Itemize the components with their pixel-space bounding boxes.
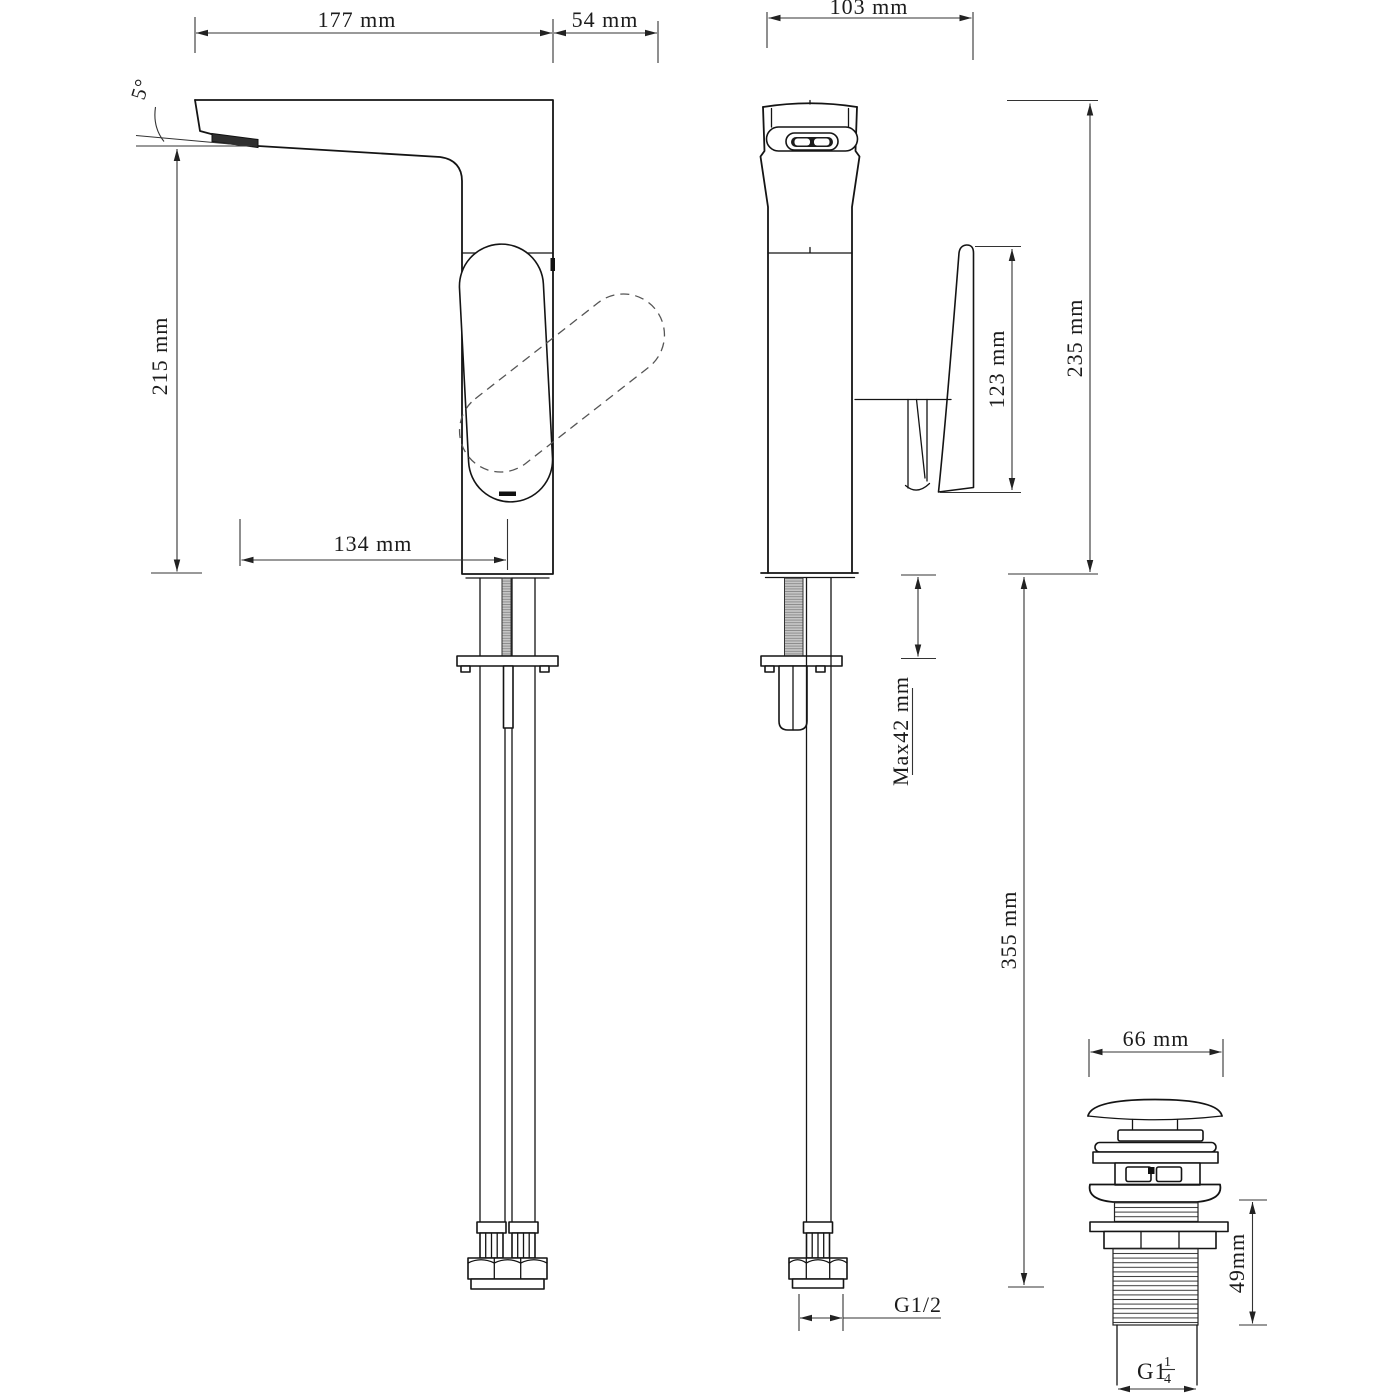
waste-dome-flange <box>1090 1185 1221 1203</box>
front-hose-connector <box>804 1222 833 1258</box>
dim-handle-clearance: 54 mm <box>554 7 658 63</box>
dim-waste-thread-size-denominator: 4 <box>1164 1372 1171 1387</box>
side-hose-connectors <box>477 1222 538 1258</box>
side-threaded-stud <box>502 578 511 659</box>
waste-view: 66 mm 49mm G1 1 4 <box>1088 1026 1267 1389</box>
waste-washer <box>1090 1222 1228 1232</box>
technical-drawing-sheet: 177 mm 54 mm 5° 215 mm 134 mm <box>0 0 1400 1400</box>
dim-cap-diameter-label: 66 mm <box>1123 1026 1190 1051</box>
dim-spout-angle: 5° <box>126 75 252 146</box>
front-head-left-edge <box>761 107 769 573</box>
dim-hose-length: 355 mm <box>996 577 1044 1287</box>
side-washer-foot-right <box>540 666 549 672</box>
dim-spout-height-label: 215 mm <box>147 317 172 396</box>
front-aerator-slot-left <box>795 139 811 146</box>
dim-spout-reach-label: 177 mm <box>318 7 397 32</box>
dim-hose-length-label: 355 mm <box>996 891 1021 970</box>
waste-clip-latch <box>1148 1167 1155 1174</box>
dim-total-height-label: 235 mm <box>1062 299 1087 378</box>
side-hex-nut <box>468 1258 547 1289</box>
dim-waste-thread-size-main: G1 <box>1137 1359 1167 1384</box>
waste-seal-ring <box>1095 1143 1216 1153</box>
dim-total-height: 235 mm <box>1007 101 1098 575</box>
waste-cap-bottom <box>1088 1116 1222 1120</box>
dim-handle-height-label: 123 mm <box>984 330 1009 409</box>
dim-spout-angle-label: 5° <box>126 75 155 102</box>
front-view: 103 mm 235 mm 123 mm Max42 mm 35 <box>761 0 1099 1331</box>
dim-spout-reach: 177 mm <box>195 7 553 63</box>
faucet-dimension-drawing: 177 mm 54 mm 5° 215 mm 134 mm <box>0 0 1400 1400</box>
waste-stem-plate <box>1118 1130 1203 1141</box>
front-body-midline <box>768 248 852 254</box>
dim-hose-thread: G1/2 <box>799 1292 942 1331</box>
side-mounting-washer <box>457 656 558 666</box>
dim-max-deck-thickness: Max42 mm <box>888 575 936 786</box>
dim-waste-thread-size-numerator: 1 <box>1164 1355 1171 1370</box>
front-mounting-washer <box>761 656 842 666</box>
waste-clip-right <box>1157 1167 1182 1182</box>
dim-waste-thread-size: G1 1 4 <box>1118 1355 1196 1389</box>
front-aerator-slot-right <box>814 139 830 146</box>
waste-cap-top <box>1088 1100 1222 1117</box>
dim-spout-projection: 134 mm <box>240 519 508 570</box>
side-body-button-detail <box>551 258 556 271</box>
side-mounting-nut-edge <box>504 666 514 728</box>
front-head-right-edge <box>852 107 860 573</box>
waste-cap-stem <box>1133 1120 1178 1131</box>
dim-body-depth-label: 103 mm <box>830 0 909 19</box>
dim-hose-thread-label: G1/2 <box>894 1292 942 1317</box>
side-spout-tip <box>195 100 213 135</box>
dim-body-depth: 103 mm <box>767 0 973 60</box>
waste-backnut <box>1104 1232 1216 1249</box>
waste-flange-band <box>1093 1152 1218 1163</box>
front-washer-foot-right <box>816 666 825 672</box>
side-view: 177 mm 54 mm 5° 215 mm 134 mm <box>126 7 681 1289</box>
waste-thread-lower <box>1113 1249 1198 1326</box>
waste-clip-left <box>1126 1167 1151 1182</box>
dim-spout-projection-label: 134 mm <box>334 531 413 556</box>
side-handle-base-detail <box>499 492 516 497</box>
front-hex-nut <box>789 1258 847 1288</box>
dim-max-deck-thickness-label: Max42 mm <box>888 676 913 786</box>
front-handle-pivot <box>906 400 930 491</box>
dim-cap-diameter: 66 mm <box>1089 1026 1223 1077</box>
front-washer-foot-left <box>765 666 774 672</box>
dim-thread-length: 49mm <box>1224 1200 1267 1325</box>
front-supply-hose <box>807 578 832 1222</box>
side-handle-lever <box>457 242 554 504</box>
waste-thread-upper <box>1115 1202 1199 1222</box>
front-threaded-stud <box>785 578 804 658</box>
front-handle-blade <box>939 245 974 492</box>
side-washer-foot-left <box>461 666 470 672</box>
dim-thread-length-label: 49mm <box>1224 1233 1249 1293</box>
dim-handle-clearance-label: 54 mm <box>572 7 639 32</box>
dim-spout-height: 215 mm <box>147 149 202 573</box>
